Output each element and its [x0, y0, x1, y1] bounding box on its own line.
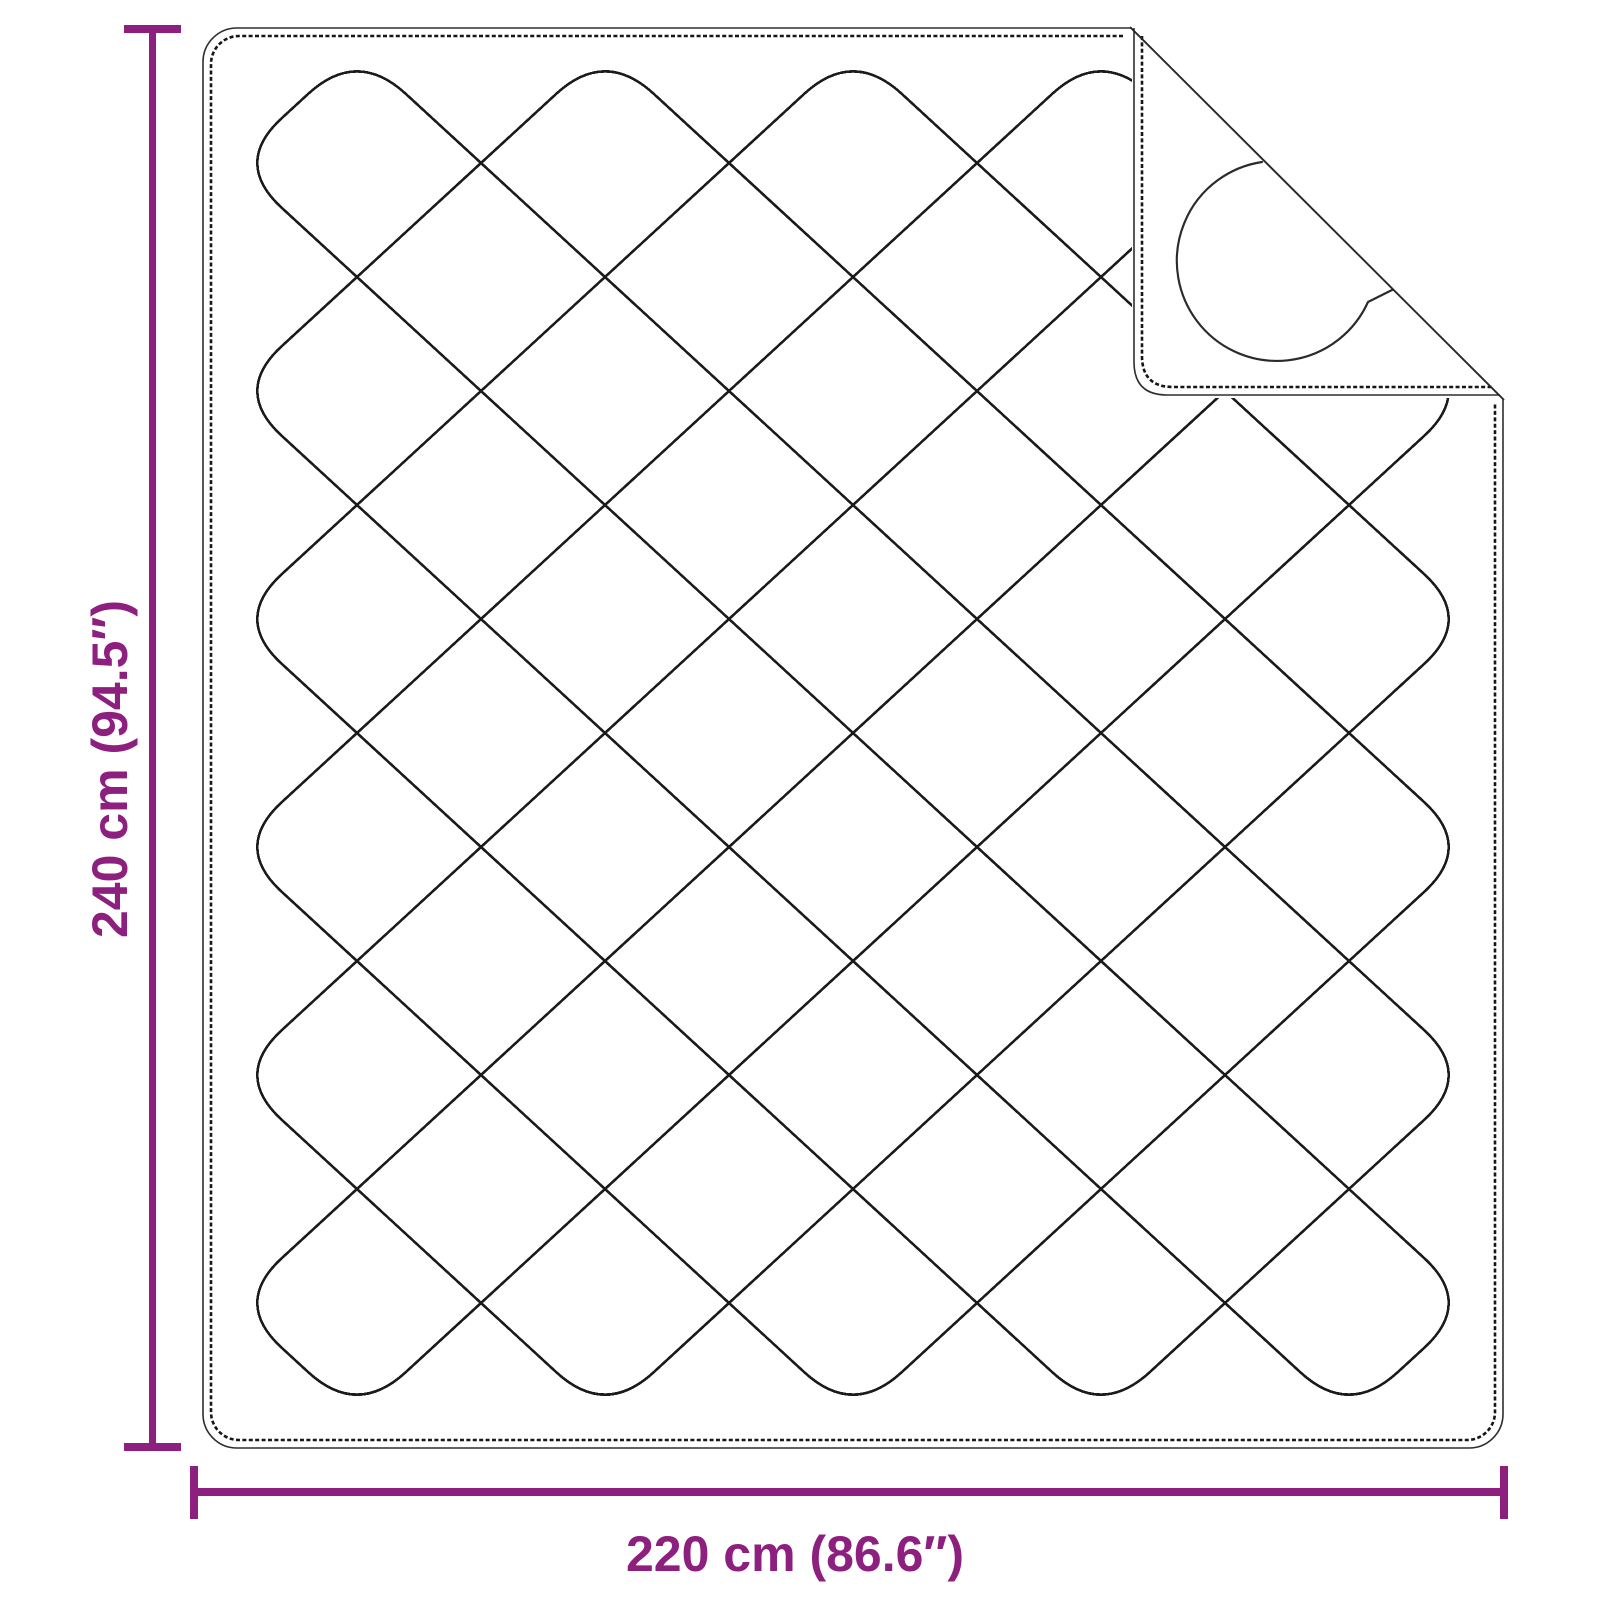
vertical-dimension-cap-bottom — [124, 1443, 181, 1451]
height-dimension-label: 240 cm (94.5″) — [81, 600, 139, 938]
vertical-dimension-bar — [149, 28, 156, 1448]
blanket-illustration — [0, 0, 1600, 1600]
horizontal-dimension-bar — [194, 1488, 1504, 1496]
horizontal-dimension-cap-right — [1500, 1466, 1508, 1519]
width-dimension-label: 220 cm (86.6″) — [626, 1525, 964, 1583]
horizontal-dimension-line — [190, 1466, 1508, 1519]
product-dimension-diagram: 240 cm (94.5″) 220 cm (86.6″) — [0, 0, 1600, 1600]
